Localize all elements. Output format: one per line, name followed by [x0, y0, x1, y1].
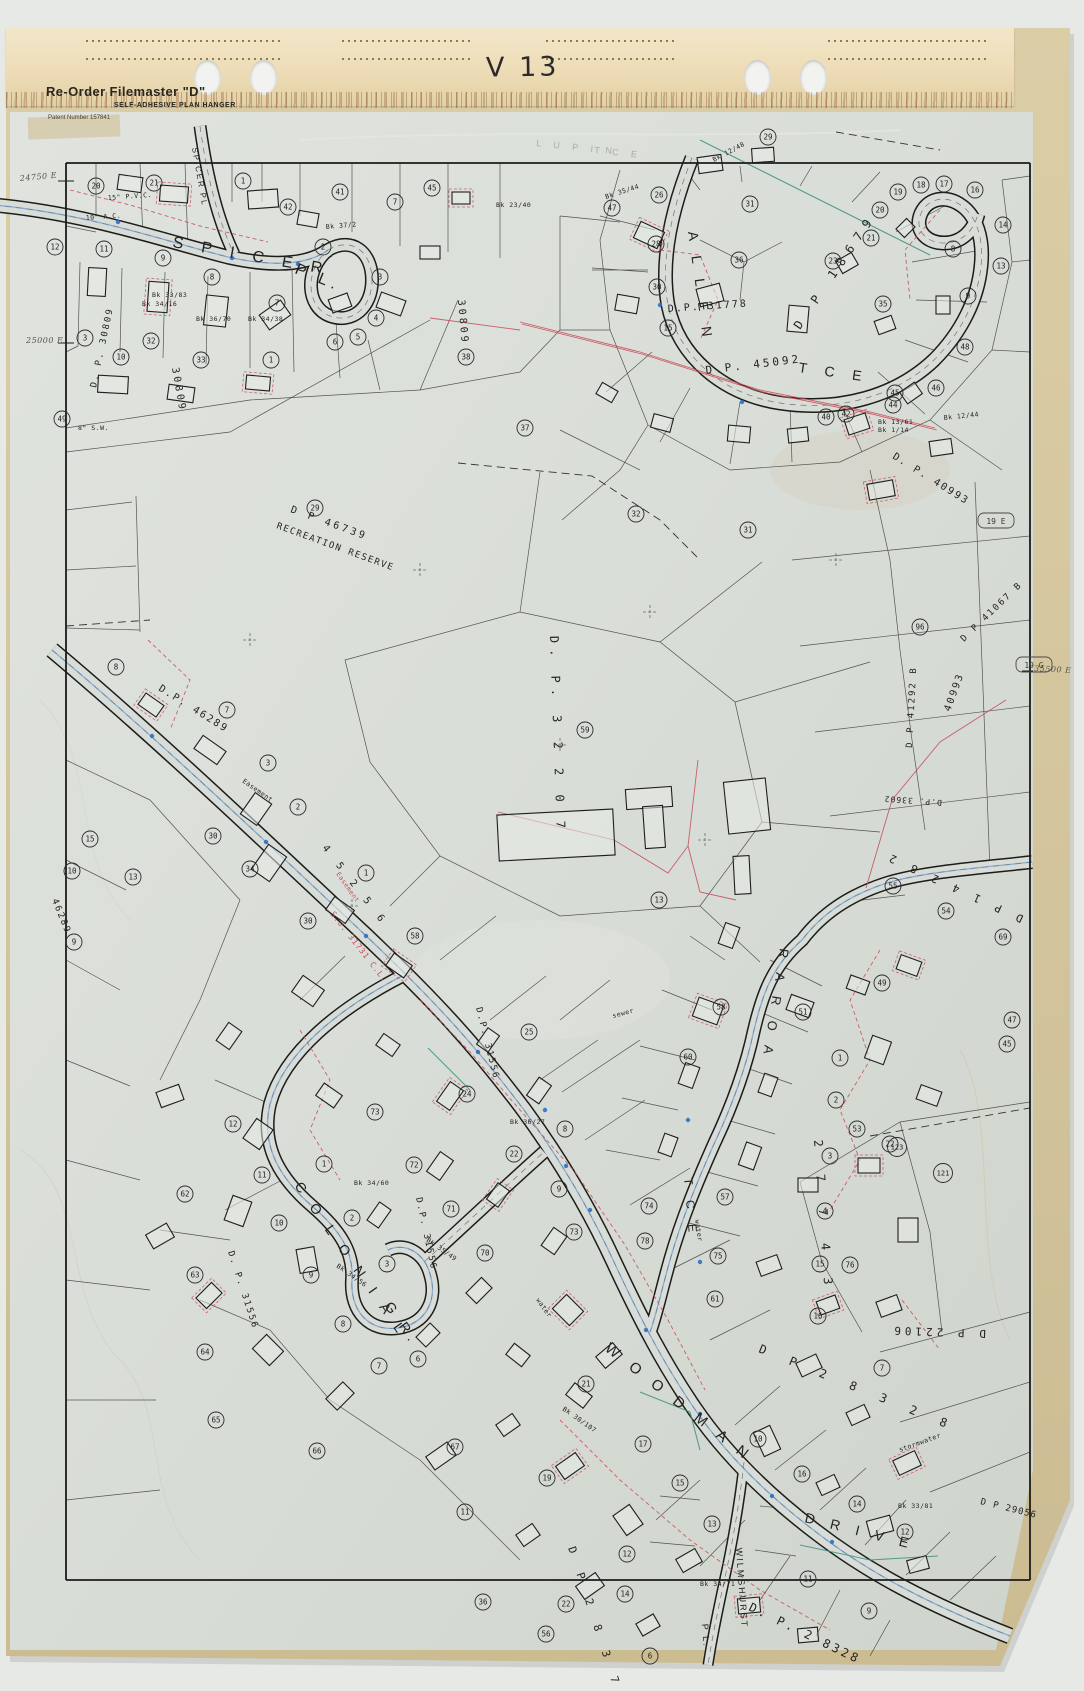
- lot-number: 121: [937, 1170, 950, 1178]
- hanger-subtitle-text: SELF-ADHESIVE PLAN HANGER: [114, 102, 236, 109]
- lot-number: 96: [915, 623, 925, 632]
- lot-number: 123: [891, 1144, 904, 1152]
- lot-number: 45: [1002, 1040, 1011, 1049]
- building-footprint: [615, 294, 639, 314]
- small-label: Bk 34/38: [248, 315, 283, 323]
- lot-number: 9: [557, 1185, 562, 1194]
- lot-number: 35: [878, 300, 887, 309]
- lot-number: 34: [245, 865, 255, 874]
- lot-number: 8: [210, 273, 215, 282]
- lot-number: 47: [607, 204, 616, 213]
- lot-number: 58: [410, 932, 420, 941]
- lot-number: 24: [462, 1090, 472, 1099]
- lot-number: 16: [970, 186, 980, 195]
- building-footprint: [296, 1247, 318, 1274]
- lot-number: 13: [996, 262, 1005, 271]
- lot-number: 15: [663, 324, 672, 333]
- lot-number: 48: [960, 343, 970, 352]
- lot-number: 15: [85, 835, 94, 844]
- small-label: Bk 34/71: [700, 1580, 735, 1588]
- small-label: Bk 23/40: [496, 201, 531, 209]
- lot-number: 25: [524, 1028, 533, 1037]
- lot-number: 13: [128, 873, 137, 882]
- building-footprint: [297, 210, 319, 227]
- lot-number: 30: [208, 832, 218, 841]
- building-footprint: [98, 375, 129, 394]
- lot-number: 53: [852, 1125, 861, 1134]
- lot-number: 3: [828, 1152, 833, 1161]
- lot-number: 6: [416, 1355, 421, 1364]
- lot-number: 8: [951, 245, 956, 254]
- lot-number: 42: [841, 410, 850, 419]
- lot-number: 8: [341, 1320, 346, 1329]
- lot-number: 16: [813, 1312, 823, 1321]
- lot-number: 7: [393, 198, 398, 207]
- lot-number: 74: [644, 1202, 654, 1211]
- lot-number: 30: [303, 917, 313, 926]
- lot-number: 11: [257, 1171, 266, 1180]
- lot-number: 8: [114, 663, 119, 672]
- lot-number: 62: [180, 1190, 189, 1199]
- lot-number: 21: [866, 234, 875, 243]
- lot-number: 1: [364, 869, 369, 878]
- water-valve-mark: [740, 400, 744, 404]
- lot-number: 11: [99, 245, 108, 254]
- lot-number: 7: [880, 1364, 885, 1373]
- lot-number: 19: [893, 188, 902, 197]
- cadastral-map-svg: 2021142417451211982734563833210331492926…: [0, 0, 1084, 1691]
- lot-number: 6: [648, 1652, 653, 1661]
- scanned-survey-plan: 2021142417451211982734563833210331492926…: [0, 0, 1084, 1691]
- lot-number: 76: [845, 1261, 855, 1270]
- small-label: Bk 33/83: [152, 291, 187, 299]
- lot-number: 75: [713, 1252, 722, 1261]
- small-label: Bk 34/60: [354, 1179, 389, 1187]
- small-label: Bk 33/81: [898, 1502, 933, 1510]
- lot-number: 8: [563, 1125, 568, 1134]
- building-footprint: [929, 439, 953, 457]
- lot-number: 65: [211, 1416, 220, 1425]
- lot-number: 12: [622, 1550, 631, 1559]
- lot-number: 47: [1007, 1016, 1016, 1025]
- small-label: Bk 36/70: [196, 315, 231, 323]
- lot-number: 9: [309, 1271, 314, 1280]
- ruled-dotted-line: [342, 58, 472, 60]
- lot-number: 2: [834, 1096, 839, 1105]
- lot-number: 7: [225, 706, 230, 715]
- lot-number: 78: [640, 1237, 650, 1246]
- building-footprint: [787, 427, 808, 443]
- water-valve-mark: [476, 1050, 480, 1054]
- lot-number: 2: [296, 803, 301, 812]
- boxed-reference-text: 19 G: [1024, 661, 1043, 670]
- lot-number: 5: [356, 333, 361, 342]
- small-label: Bk 36/27: [510, 1118, 545, 1126]
- lot-number: 10: [67, 867, 77, 876]
- lot-number: 1: [838, 1054, 843, 1063]
- lot-number: 61: [710, 1295, 719, 1304]
- lot-number: 14: [998, 221, 1008, 230]
- lot-number: 18: [916, 181, 926, 190]
- building-footprint: [898, 1218, 918, 1242]
- lot-number: 2: [321, 243, 326, 252]
- lot-number: 10: [753, 1435, 763, 1444]
- lot-number: 51: [798, 1008, 807, 1017]
- building-footprint: [87, 268, 106, 297]
- building-footprint: [245, 375, 270, 391]
- building-footprint: [452, 192, 470, 204]
- water-valve-mark: [644, 1328, 648, 1332]
- lot-number: 1: [241, 177, 246, 186]
- building-footprint: [733, 856, 751, 895]
- building-footprint: [159, 185, 188, 203]
- lot-number: 69: [998, 933, 1007, 942]
- lot-number: 9: [867, 1607, 872, 1616]
- boxed-reference-text: 19 E: [986, 517, 1005, 526]
- water-valve-mark: [830, 1540, 834, 1544]
- lot-number: 57: [720, 1193, 729, 1202]
- water-valve-mark: [116, 220, 120, 224]
- lot-number: 21: [149, 179, 158, 188]
- lot-number: 58: [716, 1003, 726, 1012]
- lot-number: 15: [675, 1479, 684, 1488]
- lot-number: 9: [161, 254, 166, 263]
- water-valve-mark: [543, 1108, 547, 1112]
- edge-label: 25000 E: [25, 336, 63, 345]
- water-valve-mark: [264, 840, 268, 844]
- lot-number: 3: [83, 334, 88, 343]
- water-valve-mark: [698, 1260, 702, 1264]
- water-valve-mark: [770, 1494, 774, 1498]
- lot-number: 26: [654, 191, 664, 200]
- lot-number: 49: [57, 415, 66, 424]
- lot-number: 63: [190, 1271, 199, 1280]
- lot-number: 3: [385, 1260, 390, 1269]
- lot-number: 28: [651, 240, 661, 249]
- lot-number: 3: [266, 759, 271, 768]
- lot-number: 36: [478, 1598, 488, 1607]
- lot-number: 12: [50, 243, 59, 252]
- lot-number: 19: [542, 1474, 551, 1483]
- lot-number: 60: [683, 1053, 693, 1062]
- lot-number: 59: [580, 726, 589, 735]
- lot-number: 49: [877, 979, 886, 988]
- lot-number: 10: [116, 353, 126, 362]
- lot-number: 20: [91, 182, 101, 191]
- building-footprint: [117, 174, 143, 192]
- lot-number: 17: [638, 1440, 647, 1449]
- lot-number: 29: [763, 133, 772, 142]
- lot-number: 44: [888, 401, 898, 410]
- lot-number: 55: [888, 882, 897, 891]
- lot-number: 54: [941, 907, 951, 916]
- lot-number: 32: [631, 510, 640, 519]
- lot-number: 56: [541, 1630, 551, 1639]
- ruled-dotted-line: [546, 58, 676, 60]
- building-footprint: [643, 805, 666, 848]
- ruled-dotted-line: [546, 40, 676, 42]
- punch-hole: [800, 60, 827, 95]
- lot-number: 71: [446, 1205, 455, 1214]
- lot-number: 13: [707, 1520, 716, 1529]
- lot-number: 9: [72, 938, 77, 947]
- building-footprint: [858, 1158, 880, 1173]
- small-label: Bk 1/14: [878, 426, 909, 434]
- building-footprint: [727, 425, 750, 443]
- lot-number: 33: [196, 356, 205, 365]
- lot-number: 45: [890, 389, 899, 398]
- building-footprint: [247, 189, 278, 209]
- lot-number: 66: [312, 1447, 322, 1456]
- lot-number: 21: [581, 1380, 590, 1389]
- lot-number: 70: [480, 1249, 490, 1258]
- small-label: 8" S.W.: [78, 424, 109, 432]
- lot-number: 1: [269, 356, 274, 365]
- ruled-dotted-line: [86, 40, 282, 42]
- water-valve-mark: [658, 303, 662, 307]
- lot-number: 31: [743, 526, 752, 535]
- street-label: P L.: [700, 1623, 712, 1647]
- lot-number: 36: [734, 256, 744, 265]
- lot-number: 9: [966, 292, 971, 301]
- lot-number: 40: [821, 413, 831, 422]
- lot-number: 46: [931, 384, 941, 393]
- lot-number: 64: [200, 1348, 210, 1357]
- lot-number: 41: [335, 188, 344, 197]
- lot-number: 32: [146, 337, 155, 346]
- lot-number: 72: [409, 1161, 418, 1170]
- lot-number: 14: [620, 1590, 630, 1599]
- lot-number: 14: [852, 1500, 862, 1509]
- lot-number: 22: [509, 1150, 518, 1159]
- lot-number: 38: [461, 353, 471, 362]
- lot-number: 16: [797, 1470, 807, 1479]
- lot-number: 31: [745, 200, 754, 209]
- ruled-dotted-line: [86, 58, 282, 60]
- lot-number: 22: [561, 1600, 570, 1609]
- lot-number: 7: [377, 1362, 382, 1371]
- building-footprint: [723, 778, 770, 834]
- lot-number: 11: [460, 1508, 469, 1517]
- hanger-patent-text: Patent Number 157841: [48, 115, 110, 121]
- hanger-brand-text: Re-Order Filemaster "D": [46, 84, 206, 99]
- water-valve-mark: [686, 1118, 690, 1122]
- sheet-code-handwritten: V 13: [486, 51, 560, 83]
- lot-number: 73: [370, 1108, 379, 1117]
- punch-hole: [250, 60, 277, 95]
- small-label: Bk 34/16: [142, 300, 177, 308]
- lot-number: 17: [939, 180, 948, 189]
- building-footprint: [936, 296, 950, 314]
- filemaster-hanger-strip: Re-Order Filemaster "D" SELF-ADHESIVE PL…: [6, 28, 1014, 106]
- lot-number: 11: [803, 1575, 812, 1584]
- ruled-dotted-line: [828, 40, 988, 42]
- lot-number: 37: [520, 424, 529, 433]
- lot-number: 3: [378, 273, 383, 282]
- lot-number: 1: [322, 1160, 327, 1169]
- water-valve-mark: [364, 934, 368, 938]
- lot-number: 4: [374, 314, 379, 323]
- lot-number: 42: [283, 203, 292, 212]
- building-footprint: [752, 147, 775, 163]
- water-valve-mark: [564, 1164, 568, 1168]
- punch-hole: [744, 60, 771, 95]
- lot-number: 12: [228, 1120, 237, 1129]
- lot-number: 2: [350, 1214, 355, 1223]
- ruled-dotted-line: [342, 40, 472, 42]
- lot-number: 67: [450, 1443, 459, 1452]
- lot-number: 7: [275, 299, 280, 308]
- lot-number: 20: [875, 206, 885, 215]
- lot-number: 45: [427, 184, 436, 193]
- lot-number: 13: [654, 896, 663, 905]
- water-valve-mark: [588, 1208, 592, 1212]
- lot-number: 6: [333, 338, 338, 347]
- building-footprint: [420, 246, 440, 259]
- lot-number: 10: [274, 1219, 284, 1228]
- ruled-dotted-line: [828, 58, 988, 60]
- lot-number: 30: [652, 283, 662, 292]
- lot-number: 73: [569, 1228, 578, 1237]
- water-valve-mark: [150, 734, 154, 738]
- small-label: Bk 13/61: [878, 418, 913, 426]
